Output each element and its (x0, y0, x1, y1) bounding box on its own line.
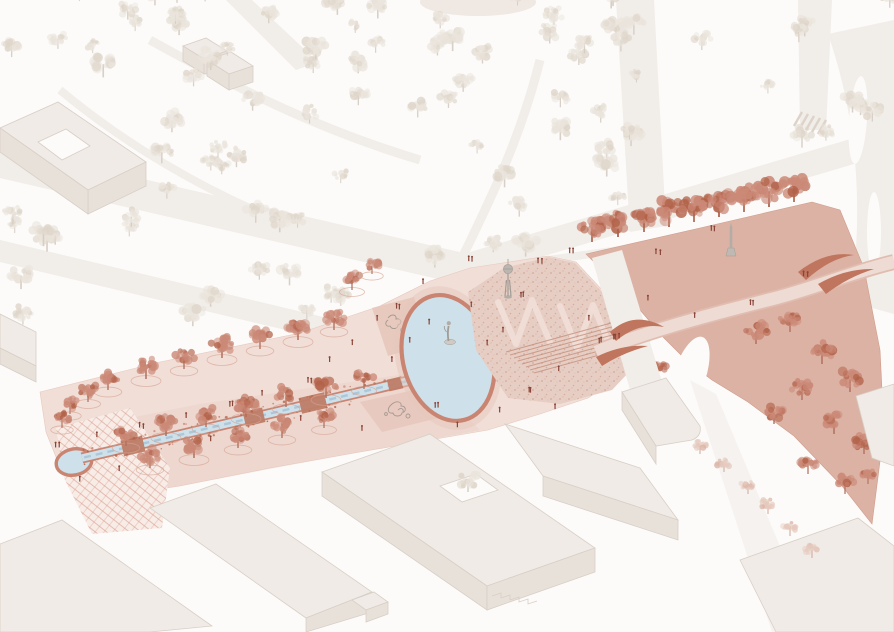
masterplan-illustration (0, 0, 894, 632)
masterplan-canvas (0, 0, 894, 632)
